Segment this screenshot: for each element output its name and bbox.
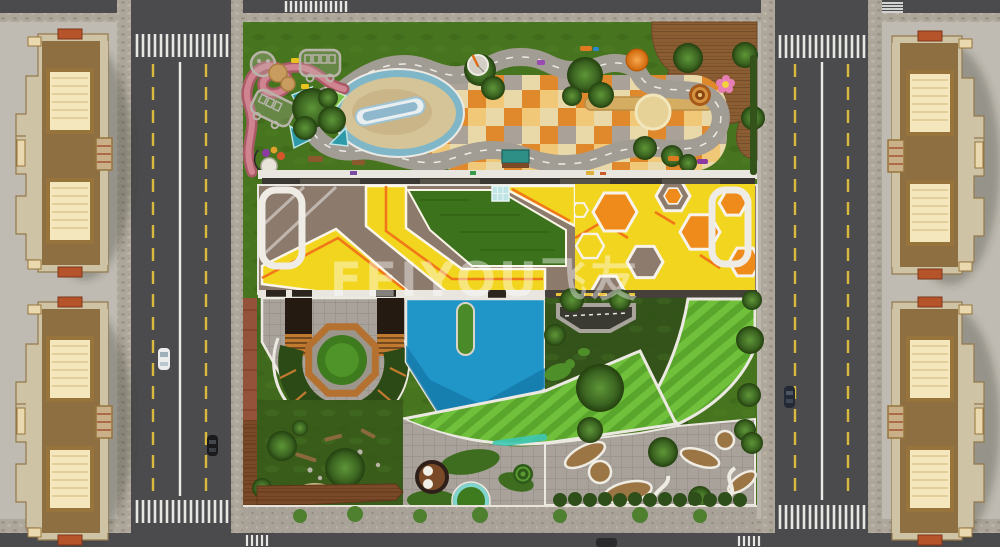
right-road — [761, 0, 882, 533]
watermark: FEIYOU飞友 — [330, 253, 640, 308]
tree — [633, 136, 657, 160]
toy-vehicle-purple — [697, 159, 708, 164]
toy-vehicle-blue — [593, 47, 599, 51]
round-wood-table — [417, 462, 447, 492]
tree — [673, 43, 703, 73]
skylight-grid — [492, 186, 509, 201]
spiral-topiary — [513, 464, 533, 484]
sundial — [468, 55, 488, 75]
tree — [741, 432, 763, 454]
planting-bed — [716, 431, 734, 449]
right-road-crosswalk-bottom — [780, 505, 864, 529]
planting-bed — [589, 461, 611, 483]
tree — [679, 154, 697, 172]
toy-car-yellow — [291, 58, 299, 63]
stepping-stone — [376, 463, 380, 467]
toy-vehicle-orange — [580, 46, 592, 51]
roof-north-walk — [258, 170, 757, 179]
left-road — [117, 0, 243, 533]
rooftop-toy — [586, 171, 594, 175]
tree — [293, 116, 317, 140]
tree — [292, 420, 308, 436]
pool-island — [457, 303, 474, 355]
rooftop-toy — [470, 171, 476, 175]
top-road-crosswalk-left — [286, 1, 346, 12]
bus-graphic-horizontal — [300, 50, 340, 82]
dark-car-bottom-road — [596, 538, 617, 547]
tree — [544, 324, 566, 346]
bench — [352, 160, 365, 165]
site-west-path — [243, 298, 257, 422]
tree — [742, 290, 762, 310]
tree — [318, 106, 346, 134]
tree — [577, 417, 603, 443]
tree — [325, 448, 365, 488]
sand-mound — [281, 77, 295, 91]
toy-car-purple — [537, 60, 545, 65]
orange-dome — [626, 49, 648, 71]
right-road-crosswalk-top — [780, 35, 864, 58]
tree — [562, 86, 582, 106]
octagon-bench-ring — [309, 327, 376, 394]
tree — [736, 326, 764, 354]
stepping-stone — [318, 476, 322, 480]
sand-water-pond — [332, 69, 464, 157]
spiral-target — [689, 84, 711, 106]
tree — [588, 82, 614, 108]
pergola — [285, 298, 312, 334]
stepping-stone — [307, 467, 312, 472]
white-car-left-road — [158, 348, 170, 370]
rooftop-toy — [350, 171, 357, 175]
kiosk — [502, 150, 529, 168]
bench — [308, 156, 323, 162]
tree — [576, 364, 624, 412]
toy-car-yellow — [301, 84, 309, 89]
black-car-left-road — [207, 435, 218, 456]
sand-circle — [636, 95, 670, 129]
nature-play-zone — [252, 400, 403, 505]
toy-vehicle-orange — [668, 156, 679, 161]
tree — [481, 76, 505, 100]
aerial-site-plan-render: FEIYOU飞友 — [0, 0, 1000, 547]
tree — [267, 431, 297, 461]
dark-car-right-road — [784, 386, 795, 408]
tree — [648, 437, 678, 467]
site-top-sidewalk — [243, 13, 757, 22]
tree — [737, 383, 761, 407]
tree — [318, 88, 338, 108]
rooftop-toy — [600, 172, 606, 175]
